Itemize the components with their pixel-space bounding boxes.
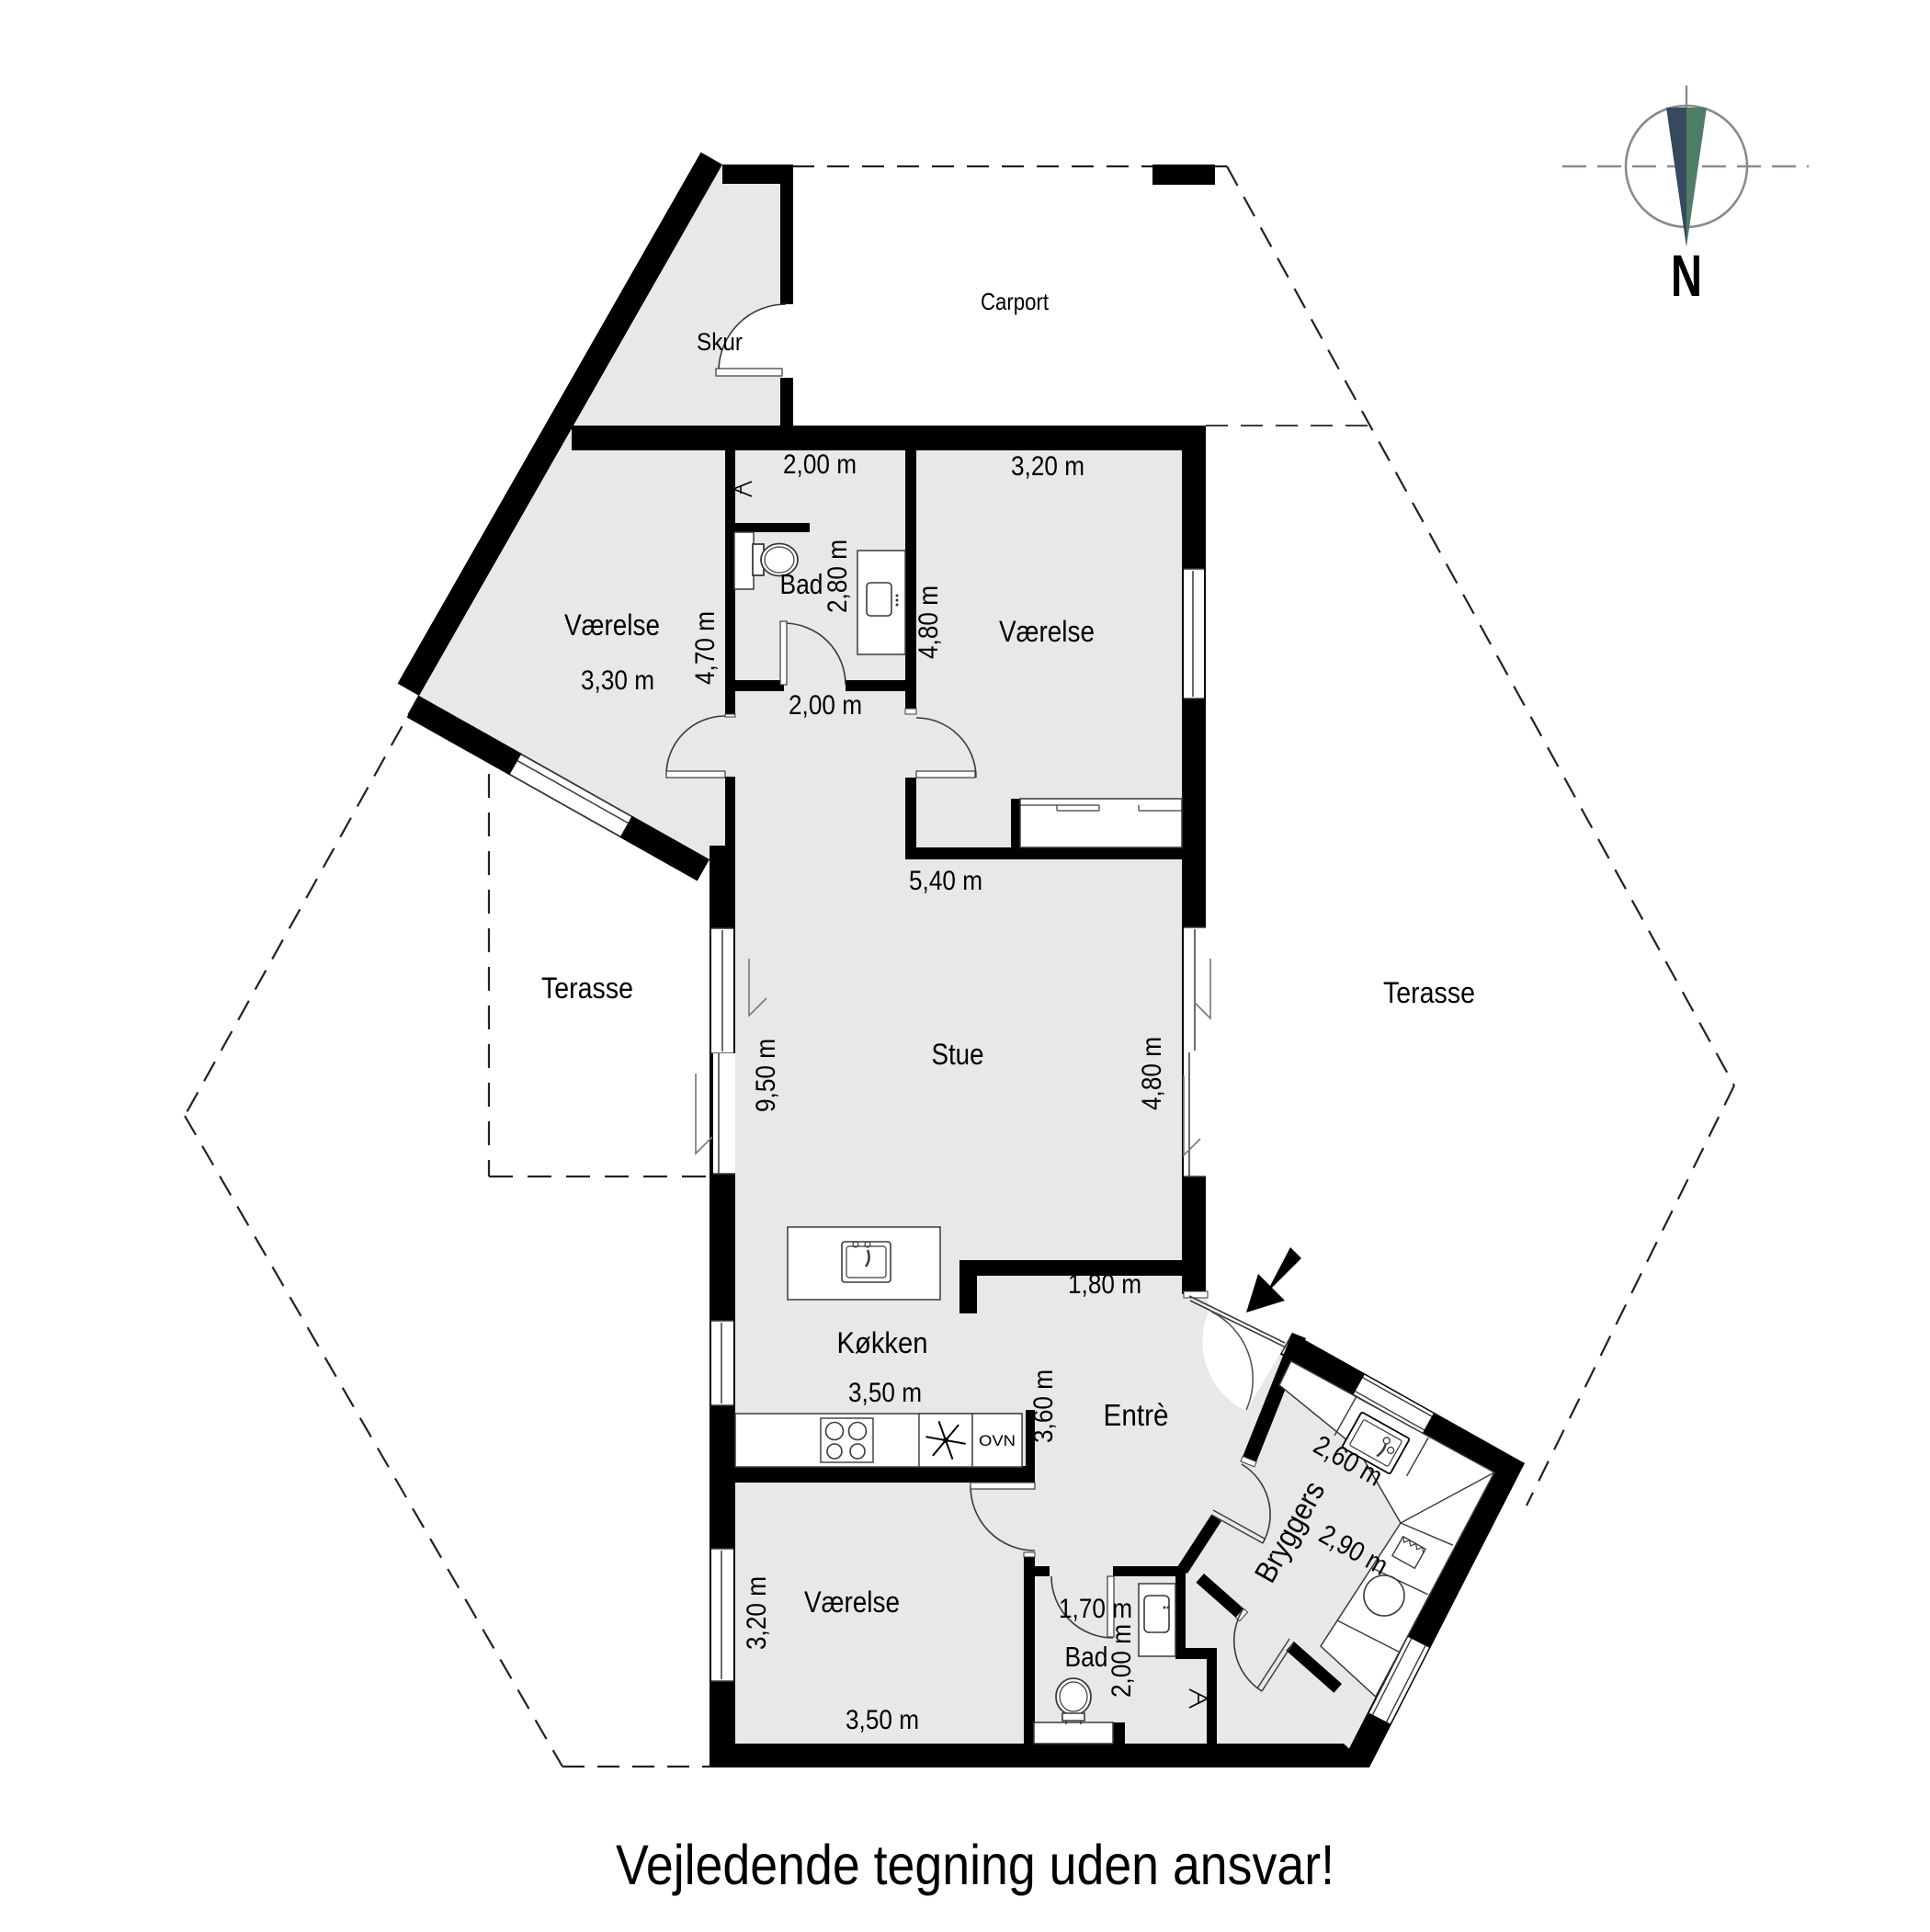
svg-text:2,00 m: 2,00 m bbox=[783, 449, 857, 480]
svg-text:2,00 m: 2,00 m bbox=[789, 690, 862, 721]
svg-text:Værelse: Værelse bbox=[564, 608, 660, 642]
svg-text:OVN: OVN bbox=[979, 1432, 1016, 1449]
svg-text:Vejledende tegning uden ansvar: Vejledende tegning uden ansvar! bbox=[616, 1834, 1334, 1896]
svg-text:Værelse: Værelse bbox=[999, 615, 1095, 648]
svg-text:Entrè: Entrè bbox=[1104, 1398, 1169, 1432]
svg-text:Skur: Skur bbox=[697, 328, 743, 356]
svg-text:9,50 m: 9,50 m bbox=[751, 1039, 781, 1112]
svg-text:4,80 m: 4,80 m bbox=[914, 585, 944, 659]
svg-text:Terasse: Terasse bbox=[541, 972, 633, 1005]
svg-text:1,80 m: 1,80 m bbox=[1068, 1269, 1141, 1300]
svg-text:4,80 m: 4,80 m bbox=[1137, 1037, 1167, 1110]
svg-text:1,70 m: 1,70 m bbox=[1059, 1594, 1132, 1624]
svg-text:Værelse: Værelse bbox=[804, 1585, 900, 1619]
svg-text:3,20 m: 3,20 m bbox=[742, 1576, 772, 1650]
svg-text:Stue: Stue bbox=[932, 1038, 984, 1071]
svg-text:3,30 m: 3,30 m bbox=[581, 665, 654, 696]
svg-text:3,50 m: 3,50 m bbox=[846, 1705, 919, 1735]
svg-text:Terasse: Terasse bbox=[1383, 976, 1475, 1009]
svg-text:4,70 m: 4,70 m bbox=[690, 611, 721, 685]
svg-text:5,40 m: 5,40 m bbox=[909, 866, 982, 896]
svg-text:Køkken: Køkken bbox=[837, 1326, 928, 1359]
svg-text:2,00 m: 2,00 m bbox=[1107, 1624, 1137, 1698]
svg-text:2,80 m: 2,80 m bbox=[823, 540, 853, 613]
svg-text:Bad: Bad bbox=[780, 568, 823, 600]
svg-text:Bad: Bad bbox=[1065, 1641, 1108, 1673]
svg-text:3,20 m: 3,20 m bbox=[1011, 451, 1084, 482]
svg-text:N: N bbox=[1671, 243, 1702, 309]
svg-text:Carport: Carport bbox=[981, 288, 1050, 315]
svg-text:3,60 m: 3,60 m bbox=[1028, 1369, 1059, 1443]
svg-text:3,50 m: 3,50 m bbox=[848, 1378, 922, 1408]
